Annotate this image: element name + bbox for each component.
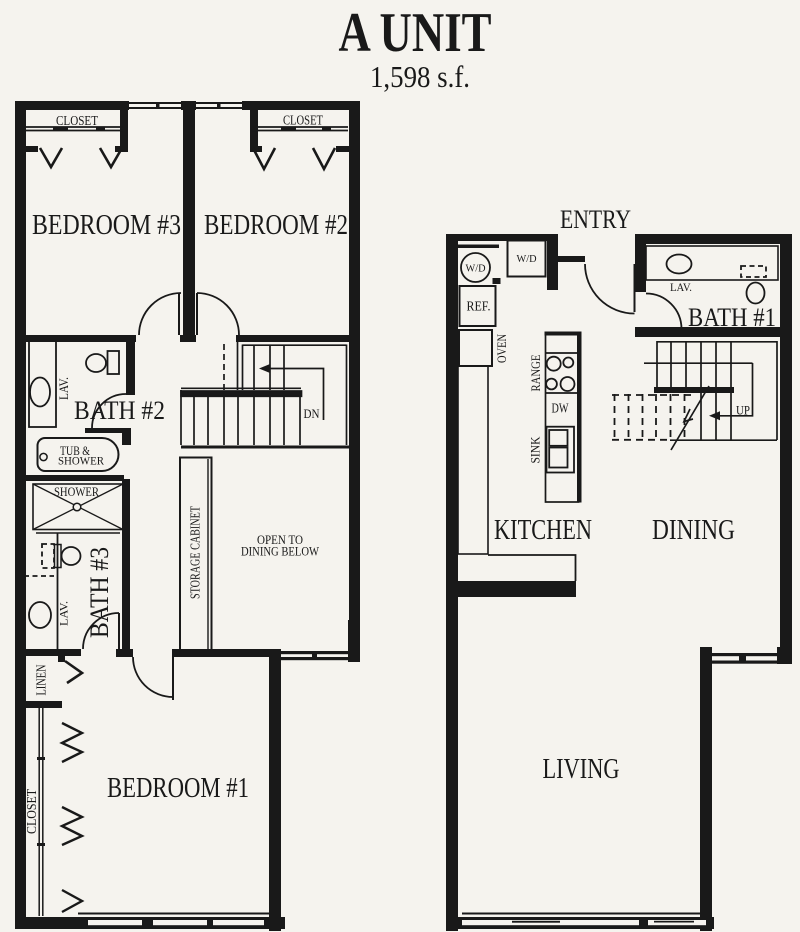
svg-text:UP: UP <box>736 404 750 418</box>
svg-text:DINING BELOW: DINING BELOW <box>241 544 320 559</box>
svg-text:RANGE: RANGE <box>529 354 543 391</box>
svg-text:SINK: SINK <box>529 437 543 464</box>
svg-text:CLOSET: CLOSET <box>283 114 323 129</box>
svg-text:LAV.: LAV. <box>670 280 692 294</box>
svg-text:LAV.: LAV. <box>56 377 71 400</box>
svg-text:LIVING: LIVING <box>543 753 620 785</box>
svg-text:BATH #2: BATH #2 <box>74 396 165 425</box>
svg-text:W/D: W/D <box>517 253 537 265</box>
svg-text:STORAGE CABINET: STORAGE CABINET <box>189 506 204 599</box>
svg-text:CLOSET: CLOSET <box>25 789 40 834</box>
svg-text:LINEN: LINEN <box>35 665 50 696</box>
svg-text:DN: DN <box>304 407 320 421</box>
svg-text:BEDROOM #2: BEDROOM #2 <box>204 209 348 241</box>
svg-text:A UNIT: A UNIT <box>339 2 492 64</box>
svg-text:BATH #1: BATH #1 <box>688 303 776 332</box>
svg-text:DW: DW <box>552 401 569 416</box>
svg-text:BATH #3: BATH #3 <box>85 547 114 638</box>
svg-text:SHOWER: SHOWER <box>54 484 99 499</box>
svg-text:BEDROOM #3: BEDROOM #3 <box>32 209 181 241</box>
svg-text:SHOWER: SHOWER <box>58 456 104 468</box>
svg-text:OVEN: OVEN <box>495 334 509 363</box>
svg-text:KITCHEN: KITCHEN <box>494 514 592 546</box>
svg-text:ENTRY: ENTRY <box>560 205 631 234</box>
svg-text:DINING: DINING <box>652 514 735 546</box>
svg-text:1,598 s.f.: 1,598 s.f. <box>370 59 470 94</box>
svg-text:W/D: W/D <box>466 264 486 275</box>
svg-text:REF.: REF. <box>467 300 491 315</box>
svg-text:BEDROOM #1: BEDROOM #1 <box>107 772 249 804</box>
svg-text:CLOSET: CLOSET <box>56 114 98 129</box>
svg-text:LAV.: LAV. <box>57 601 71 626</box>
